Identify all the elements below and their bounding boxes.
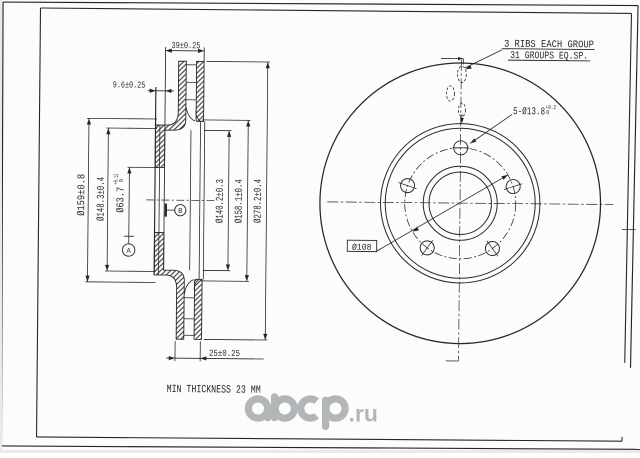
svg-text:25±0.25: 25±0.25 — [209, 348, 240, 359]
svg-text:0: 0 — [118, 179, 125, 182]
svg-text:Ø278.2±0.4: Ø278.2±0.4 — [253, 179, 265, 223]
svg-text:Ø108: Ø108 — [352, 243, 372, 253]
svg-text:Ø158.1±0.4: Ø158.1±0.4 — [234, 179, 246, 223]
svg-text:.ru: .ru — [349, 401, 378, 427]
svg-text:A: A — [126, 248, 131, 256]
svg-text:Ø63.7: Ø63.7 — [115, 187, 127, 213]
svg-text:9.6±0.25: 9.6±0.25 — [113, 79, 146, 90]
svg-text:MIN THICKNESS 23 MM: MIN THICKNESS 23 MM — [167, 384, 261, 397]
svg-text:Ø148.3±0.4: Ø148.3±0.4 — [96, 177, 108, 221]
svg-text:0: 0 — [546, 109, 549, 116]
svg-text:39±0.25: 39±0.25 — [171, 40, 200, 51]
svg-text:Ø159±0.8: Ø159±0.8 — [76, 174, 88, 216]
svg-text:B: B — [178, 208, 183, 216]
svg-text:5-Ø13.8: 5-Ø13.8 — [513, 106, 545, 118]
svg-text:Ø140.2±0.3: Ø140.2±0.3 — [215, 179, 227, 223]
